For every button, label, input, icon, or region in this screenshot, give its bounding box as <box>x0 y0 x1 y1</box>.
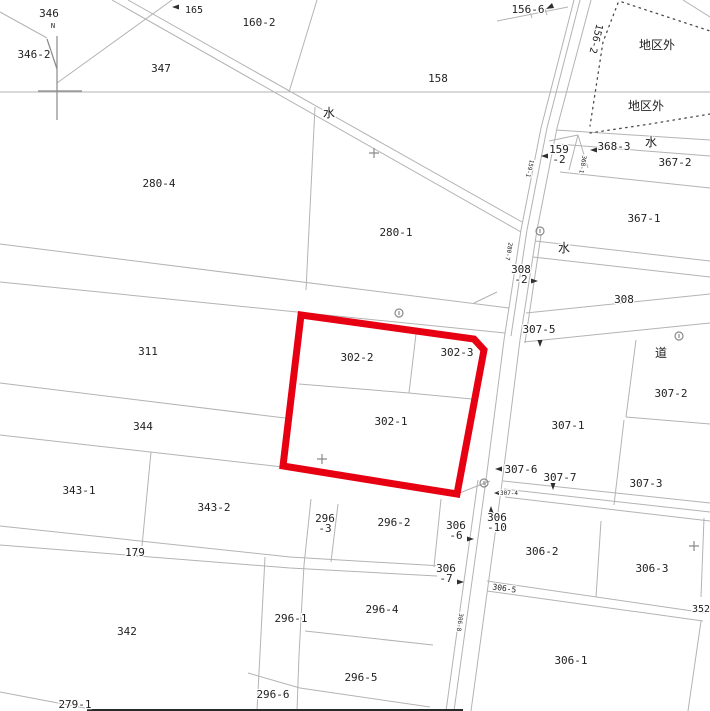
parcel-label: 306-7 <box>436 562 456 585</box>
parcel-label: 367-2 <box>658 156 691 169</box>
point-markers <box>395 227 683 487</box>
parcel-label: 306-8 <box>455 613 464 632</box>
parcel-label: 158 <box>428 72 448 85</box>
parcel-label: 296-3 <box>315 512 335 535</box>
parcel-label: 343-1 <box>62 484 95 497</box>
parcel-label: 343-2 <box>197 501 230 514</box>
leader-arrow-icon <box>457 580 464 585</box>
leader-arrow-icon <box>538 340 543 347</box>
grid-cross-icons <box>38 36 699 551</box>
parcel-label: 306-2 <box>525 545 558 558</box>
parcel-label: 296-5 <box>344 671 377 684</box>
leader-arrow-icon <box>590 148 597 153</box>
parcel-label: 道 <box>655 346 667 360</box>
parcel-label: 160-2 <box>242 16 275 29</box>
parcel-label: 156-6 <box>511 3 544 16</box>
parcel-label: 307-2 <box>654 387 687 400</box>
parcel-label: 296-1 <box>274 612 307 625</box>
parcel-label: N <box>51 22 55 30</box>
grid-cross-icon <box>689 541 699 551</box>
highlight-outline <box>283 315 484 494</box>
parcel-label: 347 <box>151 62 171 75</box>
parcel-labels: 346N346-2347165160-2158水156-6156-2地区外地区外… <box>17 3 710 711</box>
parcel-label: 地区外 <box>639 38 675 52</box>
parcel-label: 346-2 <box>17 48 50 61</box>
parcel-label: 344 <box>133 420 153 433</box>
parcel-label: 307-6 <box>504 463 537 476</box>
parcel-label: 280-4 <box>142 177 175 190</box>
parcel-label: 302-3 <box>440 346 473 359</box>
parcel-label: 307-7 <box>543 471 576 484</box>
parcel-label: 311 <box>138 345 158 358</box>
parcel-label: 302-2 <box>340 351 373 364</box>
parcel-label: 368-3 <box>597 140 630 153</box>
parcel-label: 367-1 <box>627 212 660 225</box>
grid-cross-icon <box>369 148 379 158</box>
leader-arrow-icon <box>546 3 554 9</box>
parcel-label: 346 <box>39 7 59 20</box>
highlighted-parcel-outline <box>283 315 484 494</box>
district-boundary-dotted <box>590 2 710 133</box>
parcel-label: 307-5 <box>522 323 555 336</box>
parcel-label: 306-10 <box>487 511 507 534</box>
parcel-label: 179 <box>125 546 145 559</box>
leader-arrow-icon <box>494 491 499 495</box>
parcel-label: 308 <box>614 293 634 306</box>
parcel-label: 342 <box>117 625 137 638</box>
parcel-label: 306-5 <box>492 582 517 594</box>
parcel-label: 368-1 <box>577 155 587 174</box>
leader-arrows <box>172 3 597 585</box>
parcel-label: 307-4 <box>500 490 518 497</box>
parcel-label: 280-1 <box>379 226 412 239</box>
parcel-label: 地区外 <box>628 99 664 113</box>
parcel-label: 296-2 <box>377 516 410 529</box>
parcel-label: 水 <box>558 241 570 255</box>
leader-arrow-icon <box>495 467 502 472</box>
parcel-label: 水 <box>323 106 335 120</box>
parcel-label: 306-6 <box>446 519 466 542</box>
parcel-label: 307-1 <box>551 419 584 432</box>
leader-arrow-icon <box>172 5 179 10</box>
point-marker-icon <box>395 309 403 317</box>
parcel-label: 159-1 <box>524 159 535 179</box>
parcel-label: 280-7 <box>503 242 513 261</box>
parcel-label: 352 <box>692 604 710 615</box>
point-marker-icon <box>675 332 683 340</box>
parcel-label: 302-1 <box>374 415 407 428</box>
parcel-label: 308-2 <box>511 263 531 286</box>
point-marker-icon <box>480 479 488 487</box>
parcel-label: 296-6 <box>256 688 289 701</box>
parcel-label: 159-2 <box>549 143 569 166</box>
parcel-label: 306-1 <box>554 654 587 667</box>
parcel-label: 水 <box>645 135 657 149</box>
parcel-label: 279-1 <box>58 698 91 711</box>
map-svg[interactable]: 346N346-2347165160-2158水156-6156-2地区外地区外… <box>0 0 710 711</box>
parcel-label: 296-4 <box>365 603 398 616</box>
parcel-label: 306-3 <box>635 562 668 575</box>
parcel-label: 307-3 <box>629 477 662 490</box>
cadastral-map-canvas[interactable]: 346N346-2347165160-2158水156-6156-2地区外地区外… <box>0 0 710 711</box>
grid-cross-icon <box>317 454 327 464</box>
parcel-label: 165 <box>185 5 203 16</box>
